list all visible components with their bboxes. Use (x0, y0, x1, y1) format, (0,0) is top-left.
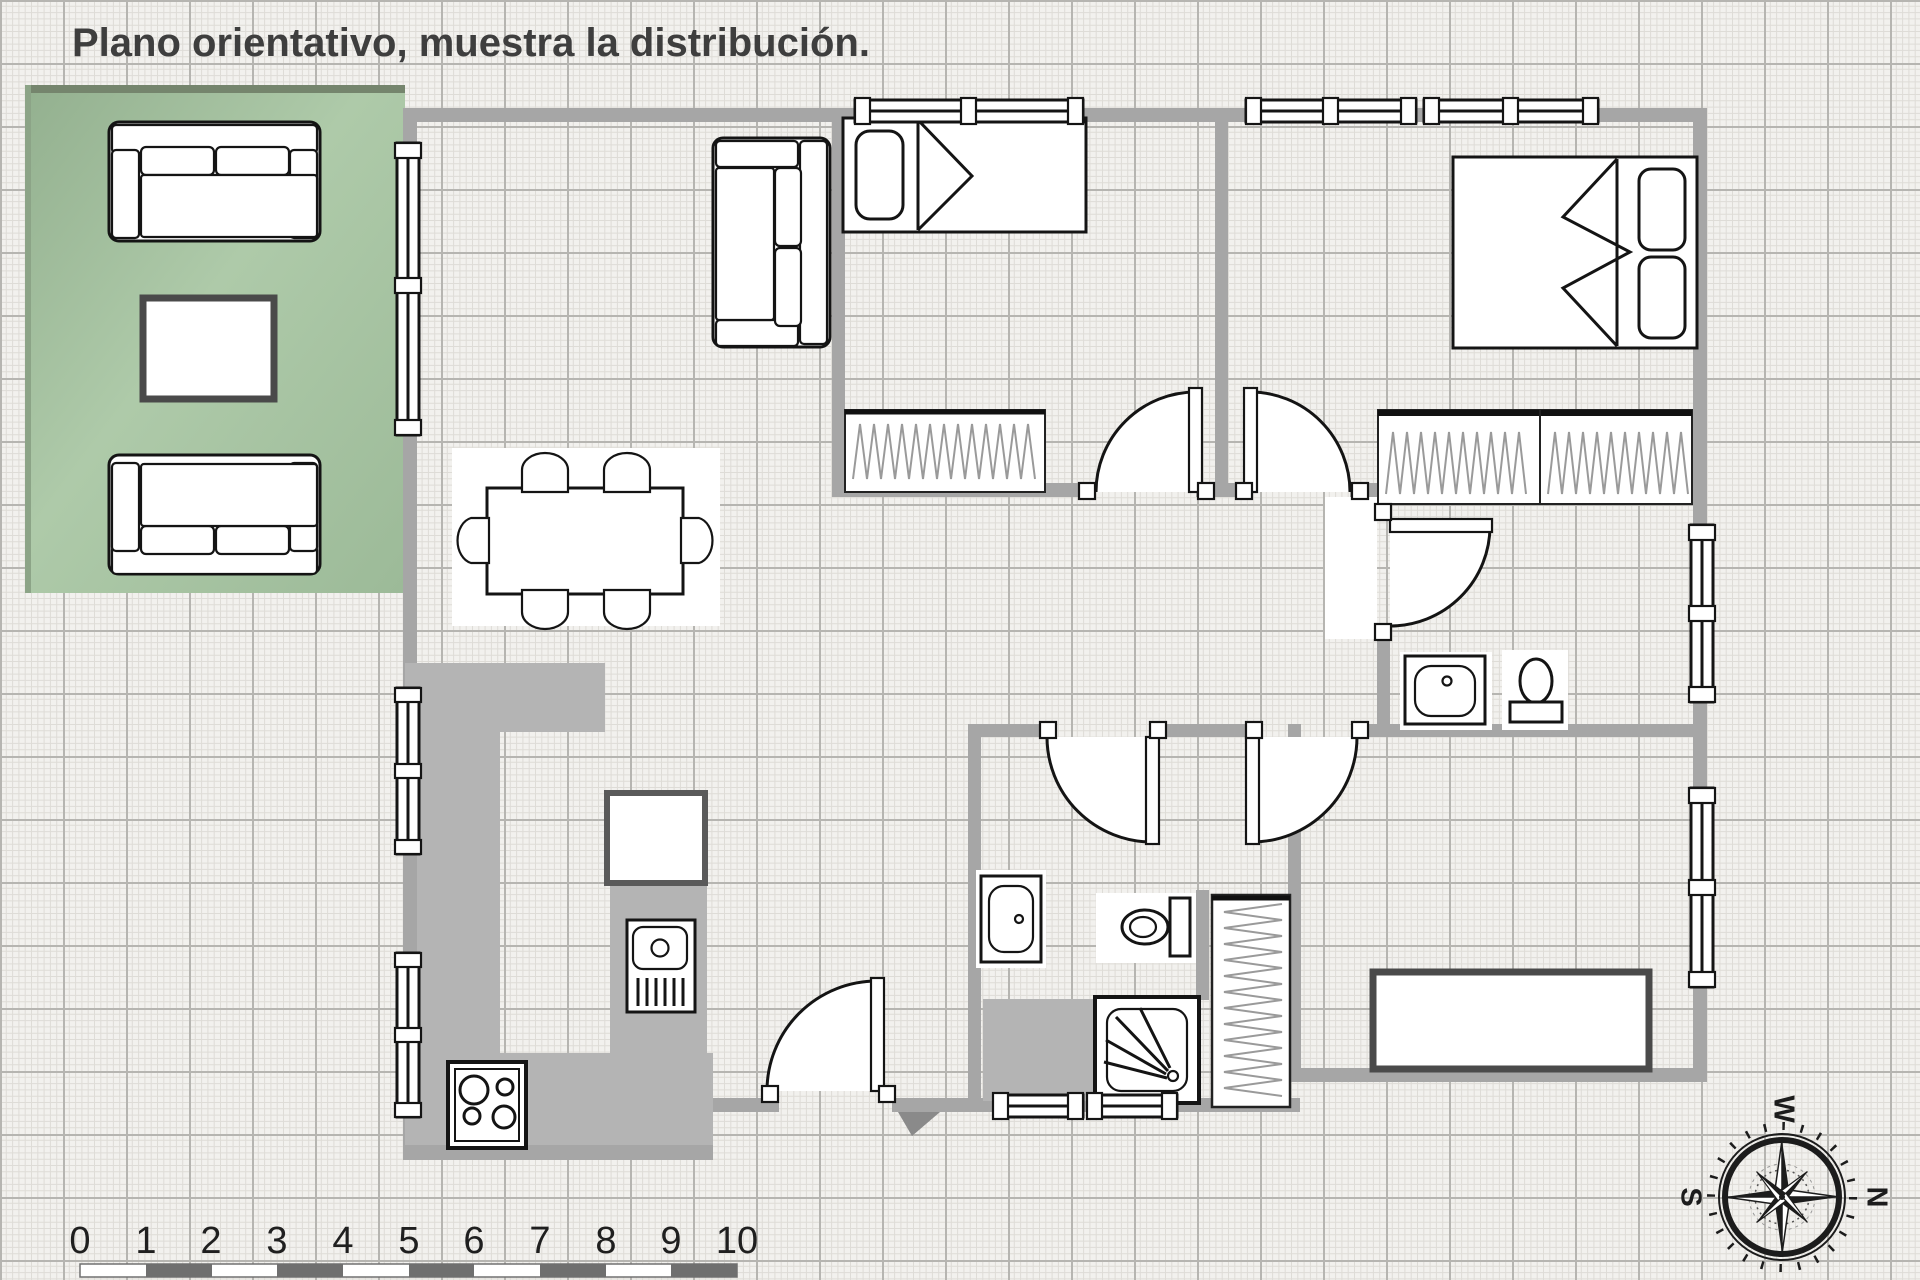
single-bed (843, 118, 1086, 232)
wardrobe-single-room (845, 410, 1045, 492)
wardrobe-column (1212, 895, 1290, 1107)
ruler-label: 3 (266, 1220, 287, 1262)
dining-chair (458, 518, 489, 563)
wall-entrance-right (892, 1098, 995, 1112)
ruler-label: 8 (595, 1220, 616, 1262)
door-leaf (1390, 519, 1492, 532)
ruler-label: 2 (200, 1220, 221, 1262)
fridge (607, 793, 705, 883)
floor-plan-page: W N S 0 1 2 3 4 5 6 7 8 9 10 Plano orien… (0, 0, 1920, 1280)
dining-chair (604, 453, 650, 492)
ruler-label: 0 (69, 1220, 90, 1262)
window-bathroom-bottom-b (1087, 1093, 1177, 1119)
window-bedroom3-right (1689, 788, 1715, 987)
door-leaf (1189, 388, 1202, 492)
pillow (1639, 257, 1685, 338)
terrace-top-edge (25, 85, 405, 93)
stove (448, 1062, 526, 1148)
scale-bar-segment (277, 1264, 343, 1277)
washbasin-icon (1405, 656, 1485, 724)
bed-third-room (1373, 972, 1649, 1069)
dining-chair (681, 518, 712, 563)
washbasin-icon (981, 876, 1041, 962)
dining-chair (522, 453, 568, 492)
laundry-unit (983, 999, 1093, 1101)
door-leaf (1146, 737, 1159, 844)
terrace-left-edge (25, 85, 31, 593)
sofa-dining (713, 138, 830, 347)
window-bedroom2-top-b (1424, 98, 1598, 124)
window-kitchen-1 (395, 688, 421, 854)
shower-drain-icon (1168, 1071, 1178, 1081)
dining-chair (522, 590, 568, 629)
ruler-label: 10 (716, 1220, 758, 1262)
wardrobe-double-room (1378, 410, 1692, 504)
pillow (1639, 169, 1685, 250)
ruler-label: 1 (135, 1220, 156, 1262)
compass-letter-right: N (1860, 1187, 1892, 1208)
shower-tray (1095, 997, 1199, 1103)
sink-drain-icon (652, 940, 669, 957)
living-room-terrace (25, 85, 405, 593)
sofa-top (109, 122, 320, 241)
compass-letter-top: W (1767, 1095, 1799, 1123)
compass-letter-left: S (1674, 1187, 1706, 1206)
kitchen-counter-top (405, 663, 605, 732)
door-leaf (871, 978, 884, 1091)
scale-bar-segment (409, 1264, 474, 1277)
scale-bar-segment (146, 1264, 212, 1277)
window-bathroom-bottom-a (993, 1093, 1083, 1119)
wall-toilet-partition (1196, 890, 1209, 1000)
ruler-label: 9 (660, 1220, 681, 1262)
window-bedroom2-top-a (1246, 98, 1416, 124)
pillow (856, 131, 903, 219)
ruler-label: 4 (332, 1220, 353, 1262)
dining-table (487, 488, 683, 594)
window-ensuite-right (1689, 525, 1715, 702)
window-kitchen-2 (395, 953, 421, 1117)
door-leaf (1244, 388, 1257, 492)
ruler-label: 7 (529, 1220, 550, 1262)
door-leaf (1246, 737, 1259, 844)
window-living (395, 143, 421, 435)
window-bedroom1-top (855, 98, 1083, 124)
floor-plan-drawing: W N S 0 1 2 3 4 5 6 7 8 9 10 Plano orien… (0, 0, 1920, 1280)
coffee-table (143, 298, 274, 399)
hallway-floor-patch (1325, 497, 1377, 639)
ruler-label: 5 (398, 1220, 419, 1262)
kitchen-counter-vertical (417, 732, 500, 1053)
dining-chair (604, 590, 650, 629)
wall-between-bedrooms (1215, 108, 1228, 495)
wall-ensuite-left-b (1377, 626, 1390, 737)
page-title: Plano orientativo, muestra la distribuci… (72, 21, 870, 65)
ruler-label: 6 (463, 1220, 484, 1262)
scale-bar-segment (540, 1264, 606, 1277)
kitchen-sink-unit (627, 920, 695, 1012)
double-bed (1453, 157, 1697, 348)
bathroom-ensuite (1400, 650, 1568, 730)
sofa-bottom (109, 455, 320, 574)
scale-bar-segment (671, 1264, 737, 1277)
